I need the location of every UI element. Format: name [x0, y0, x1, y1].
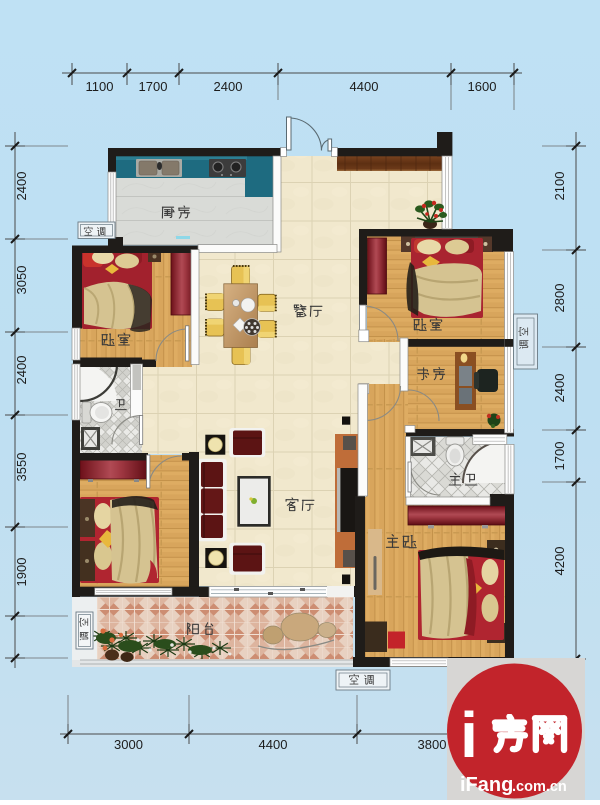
svg-text:2400: 2400: [214, 79, 243, 94]
svg-text:2400: 2400: [14, 356, 29, 385]
svg-text:3050: 3050: [14, 266, 29, 295]
svg-text:.com.cn: .com.cn: [512, 779, 567, 795]
svg-text:1700: 1700: [552, 442, 567, 471]
svg-text:4400: 4400: [259, 737, 288, 752]
svg-text:2100: 2100: [552, 172, 567, 201]
svg-text:1100: 1100: [86, 79, 114, 94]
svg-text:iFang: iFang: [460, 774, 513, 796]
svg-text:i: i: [460, 699, 478, 771]
svg-text:2400: 2400: [552, 374, 567, 403]
svg-text:2400: 2400: [14, 172, 29, 201]
svg-text:1900: 1900: [14, 558, 29, 587]
svg-text:2800: 2800: [552, 284, 567, 313]
svg-text:4200: 4200: [552, 547, 567, 576]
svg-text:3800: 3800: [418, 737, 447, 752]
svg-text:4400: 4400: [350, 79, 379, 94]
svg-text:3000: 3000: [114, 737, 143, 752]
svg-text:3550: 3550: [14, 453, 29, 482]
svg-text:1700: 1700: [139, 79, 168, 94]
svg-text:1600: 1600: [468, 79, 497, 94]
